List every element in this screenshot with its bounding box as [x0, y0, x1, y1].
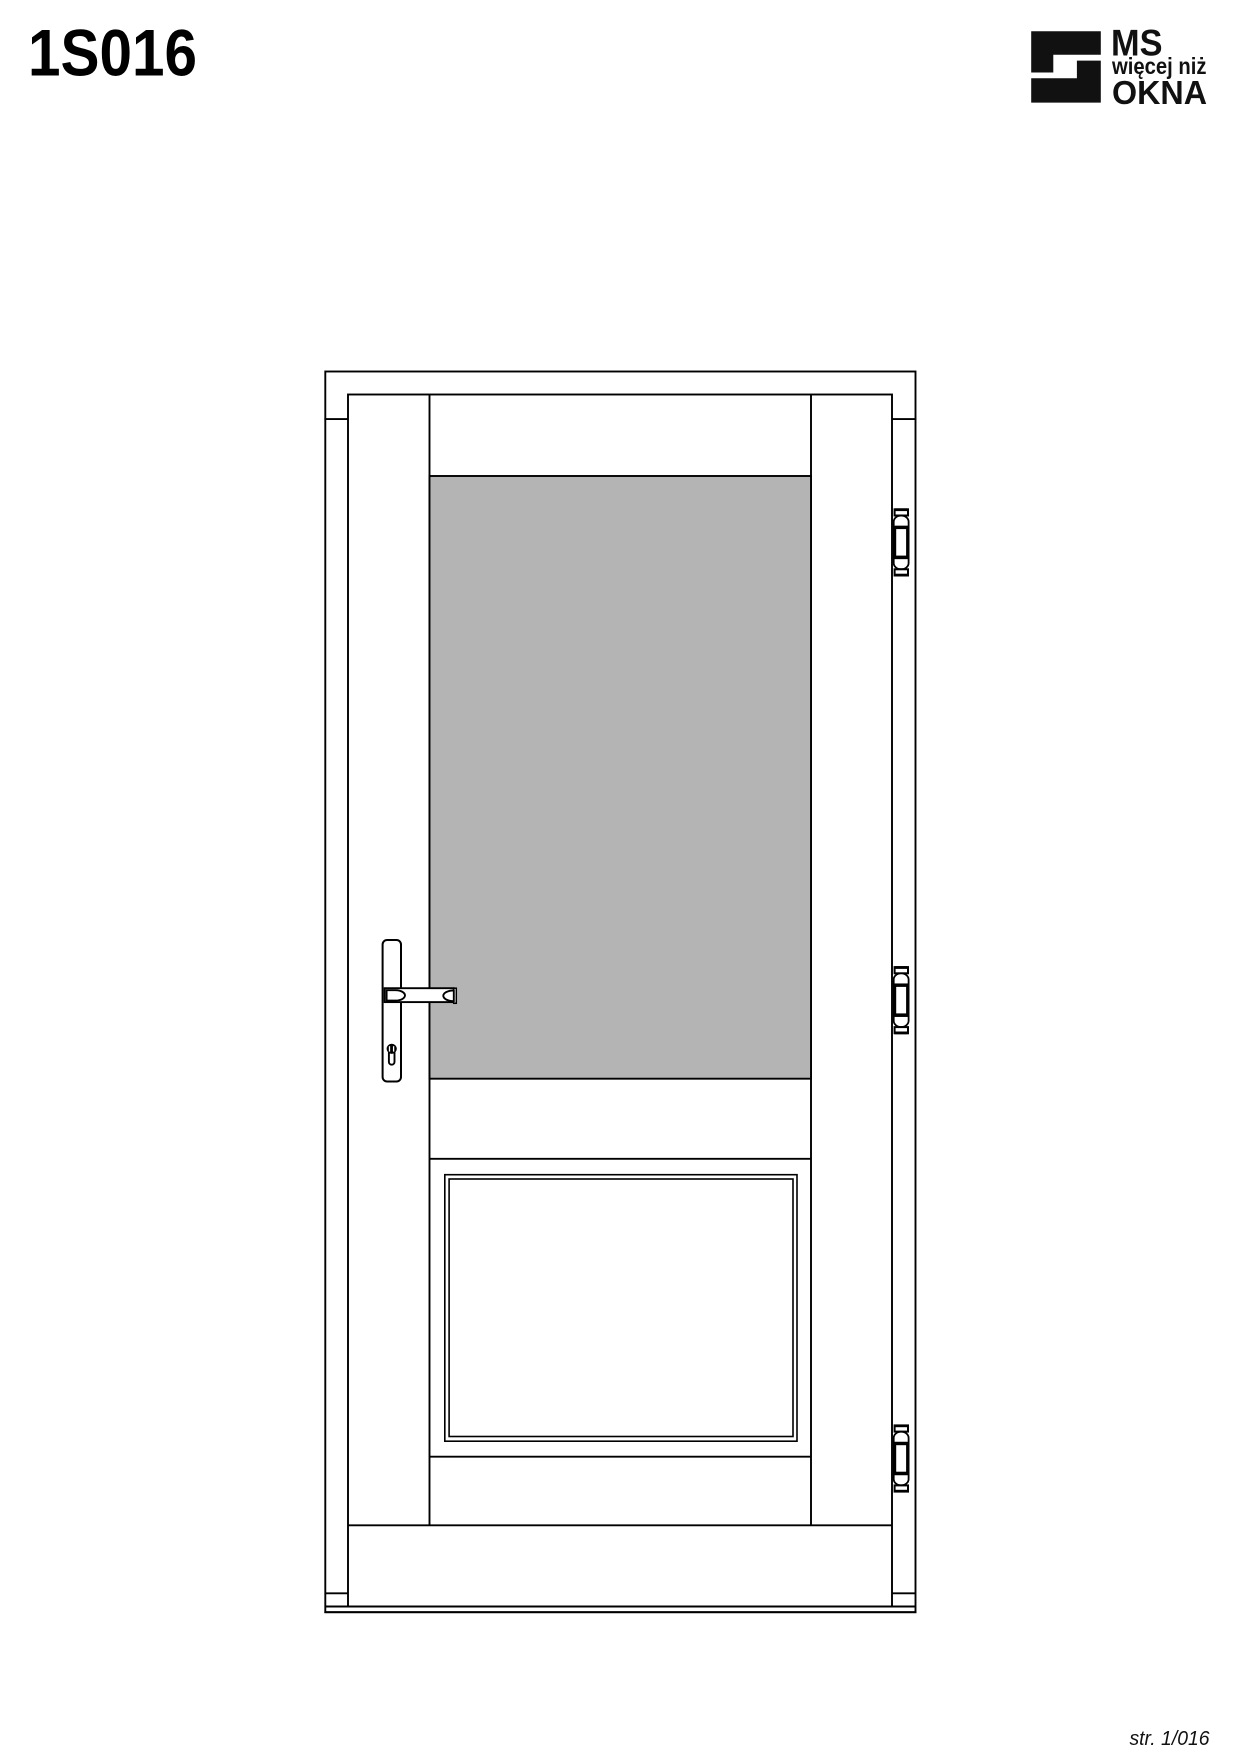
svg-text:1S016: 1S016: [28, 15, 197, 89]
svg-text:OKNA: OKNA: [1112, 75, 1207, 112]
svg-text:str. 1/016: str. 1/016: [1130, 1727, 1211, 1750]
